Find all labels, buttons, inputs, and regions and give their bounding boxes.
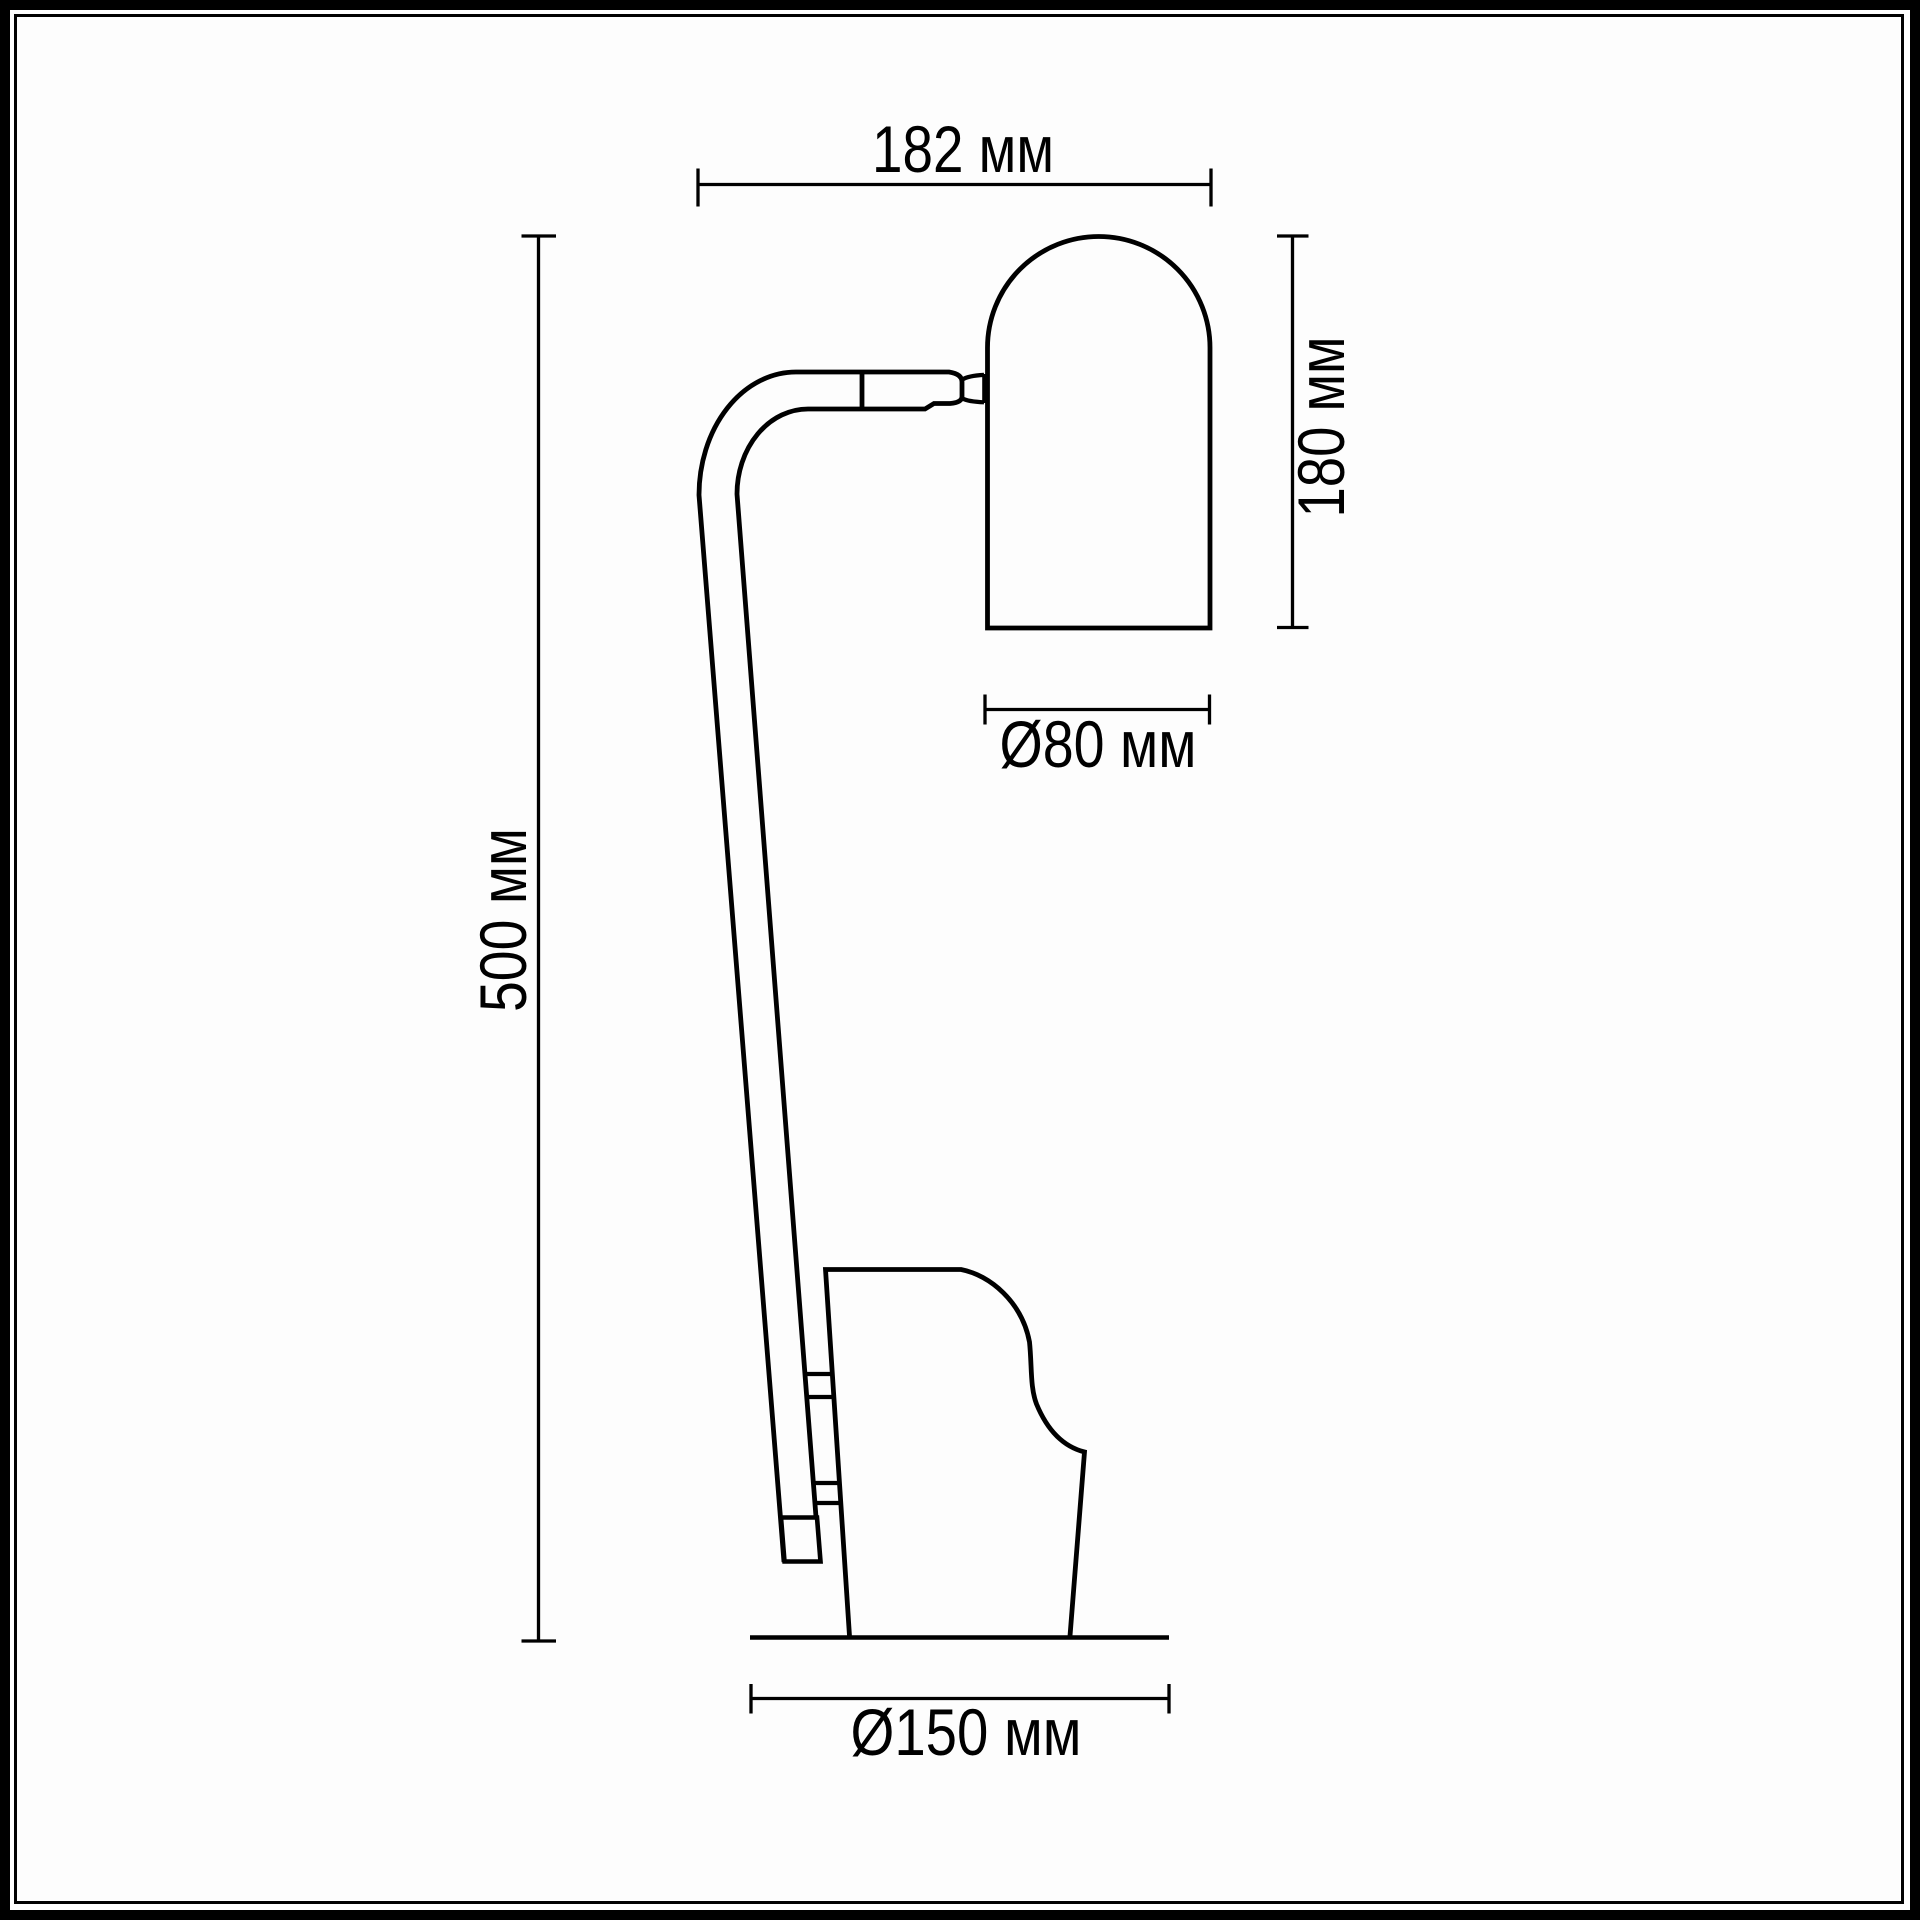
svg-text:180 мм: 180 мм [1284, 337, 1358, 518]
svg-text:Ø80 мм: Ø80 мм [1000, 707, 1197, 781]
svg-text:182 мм: 182 мм [872, 112, 1054, 186]
svg-text:Ø150 мм: Ø150 мм [851, 1695, 1082, 1769]
svg-text:500 мм: 500 мм [466, 828, 540, 1012]
